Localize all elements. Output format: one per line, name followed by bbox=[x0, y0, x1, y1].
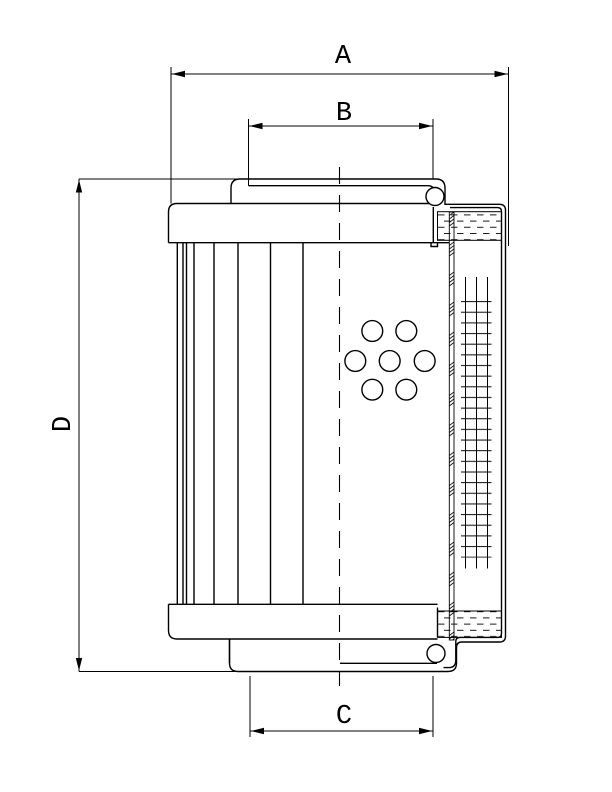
dim-b-arrow-right bbox=[419, 123, 432, 130]
top-end-cap bbox=[169, 204, 450, 247]
dimension-c: C bbox=[250, 676, 433, 737]
dimension-d-label: D bbox=[49, 416, 79, 432]
inner-tube-wall bbox=[449, 212, 454, 640]
dimension-b-label: B bbox=[336, 99, 352, 129]
dim-c-arrow-right bbox=[419, 728, 432, 735]
o-ring-top bbox=[426, 188, 444, 206]
dimension-c-label: C bbox=[336, 702, 352, 732]
dim-d-arrow-top bbox=[76, 180, 82, 193]
dim-b-arrow-left bbox=[249, 123, 262, 130]
technical-drawing-page: A B C D bbox=[0, 0, 612, 792]
seal-top bbox=[438, 212, 502, 241]
dim-c-arrow-left bbox=[251, 728, 264, 735]
pleated-media bbox=[177, 243, 303, 605]
perforation-holes bbox=[345, 321, 435, 401]
dim-a-arrow-left bbox=[172, 71, 185, 78]
support-mesh bbox=[461, 277, 492, 569]
dim-a-arrow-right bbox=[495, 71, 508, 78]
dimension-a-label: A bbox=[335, 42, 352, 72]
filter-element-drawing: A B C D bbox=[0, 0, 612, 792]
o-ring-bottom bbox=[427, 645, 445, 663]
dimension-b: B bbox=[249, 99, 434, 186]
bottom-end-cap bbox=[169, 604, 438, 663]
dim-d-arrow-bottom bbox=[76, 658, 82, 671]
dimension-d: D bbox=[49, 179, 240, 672]
seal-bottom bbox=[438, 611, 502, 637]
